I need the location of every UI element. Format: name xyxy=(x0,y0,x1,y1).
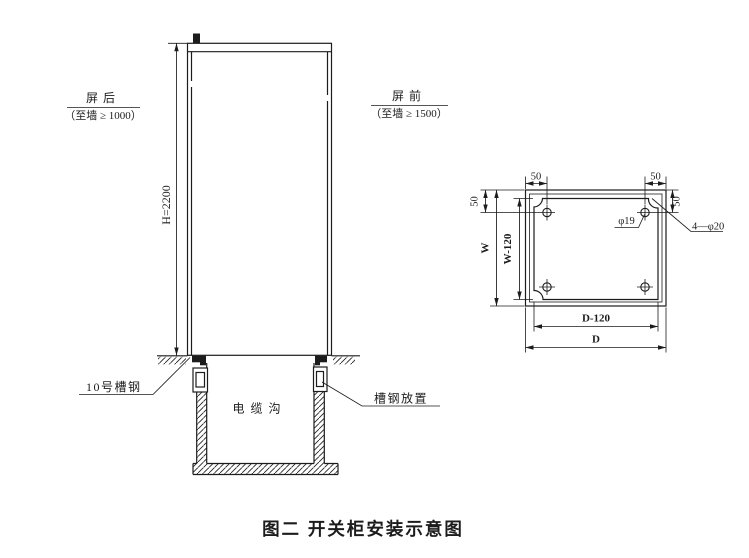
right-channel-steel xyxy=(314,367,328,392)
rear-clearance-note: 屏后 （至墙 ≥ 1000） xyxy=(64,91,142,122)
dim-offset-right: 50 xyxy=(672,196,683,207)
base-plate xyxy=(534,199,658,300)
bolt-holes-label: 4—φ20 xyxy=(692,222,724,233)
dimension-arrows xyxy=(483,181,674,349)
bolt-hole xyxy=(539,279,555,295)
dim-width-overall: W xyxy=(480,243,492,254)
rear-clearance-subtitle: （至墙 ≥ 1000） xyxy=(64,108,142,122)
height-dimension: H=2200 xyxy=(159,43,188,355)
dim-offset-left: 50 xyxy=(470,196,481,207)
front-clearance-note: 屏前 （至墙 ≥ 1500） xyxy=(370,88,448,120)
foundation-bolt-holes xyxy=(539,205,653,296)
dim-offset-top-left: 50 xyxy=(531,172,542,183)
channel-steel-sections xyxy=(192,356,327,392)
channel-steel-label: 10号槽钢 xyxy=(86,380,142,394)
elevation-view: H=2200 屏后 （至墙 ≥ 1000） 屏前 （至墙 ≥ 1500） 电缆沟… xyxy=(64,34,448,475)
bolt-hole xyxy=(637,279,653,295)
plan-view: 50 50 50 50 W W-120 D-120 D φ19 4—φ20 xyxy=(470,172,725,353)
left-channel-steel xyxy=(193,368,208,392)
cabinet-outline xyxy=(188,34,332,356)
bolt-holes-callout: 4—φ20 xyxy=(652,199,724,233)
channel-place-label: 槽钢放置 xyxy=(374,391,428,406)
front-clearance-subtitle: （至墙 ≥ 1500） xyxy=(370,106,448,120)
ground-hatch-left xyxy=(158,357,186,365)
switchgear-installation-diagram: H=2200 屏后 （至墙 ≥ 1000） 屏前 （至墙 ≥ 1500） 电缆沟… xyxy=(0,0,749,558)
ground-hatch-right xyxy=(333,357,355,365)
height-dim-label: H=2200 xyxy=(159,185,173,224)
front-clearance-title: 屏前 xyxy=(392,88,426,103)
figure-caption: 图二 开关柜安装示意图 xyxy=(262,519,464,539)
hole-dia-label: φ19 xyxy=(618,216,635,227)
channel-placement-callout: 槽钢放置 xyxy=(322,382,440,406)
bolt-hole xyxy=(539,205,555,221)
lifting-lug xyxy=(193,34,200,44)
dim-depth-bolt: D-120 xyxy=(582,313,611,325)
hole-diameter-callout: φ19 xyxy=(615,215,645,228)
dim-depth-overall: D xyxy=(592,334,600,346)
dim-offset-top-right: 50 xyxy=(650,172,661,183)
dim-width-bolt: W-120 xyxy=(502,233,514,264)
bolt-hole xyxy=(637,205,653,221)
installation-diagram-page: H=2200 屏后 （至墙 ≥ 1000） 屏前 （至墙 ≥ 1500） 电缆沟… xyxy=(0,0,749,558)
cable-trench-label: 电缆沟 xyxy=(232,402,286,416)
rear-clearance-title: 屏后 xyxy=(86,91,120,105)
